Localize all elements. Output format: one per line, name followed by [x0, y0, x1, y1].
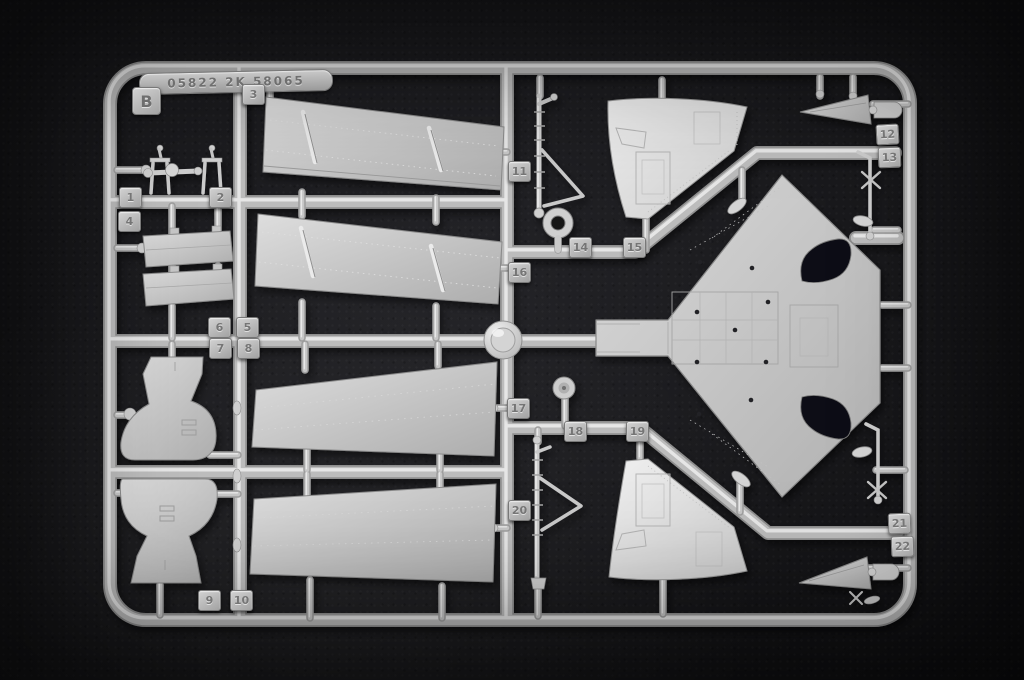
part-tag-13: 13 — [878, 147, 902, 169]
part-tag-11: 11 — [508, 161, 531, 182]
part-tag-5: 5 — [236, 317, 259, 338]
part-tag-16: 16 — [508, 262, 531, 283]
part-wing-upper-2 — [255, 214, 502, 304]
part-tag-15: 15 — [623, 237, 646, 258]
part-intake-duct-1 — [121, 357, 216, 460]
part-tag-7: 7 — [209, 338, 232, 359]
part-antenna-2 — [866, 424, 886, 504]
part-gear-strut-2 — [531, 436, 581, 589]
part-tag-19: 19 — [626, 421, 649, 442]
part-wheel — [553, 377, 575, 399]
part-tag-17: 17 — [507, 398, 530, 419]
part-tag-22: 22 — [891, 536, 915, 558]
part-tag-10: 10 — [230, 590, 253, 611]
part-wing-upper-1 — [263, 97, 504, 190]
part-tag-18: 18 — [564, 421, 587, 442]
part-wing-lower-1 — [252, 362, 497, 456]
part-tail-fin-bottom — [609, 459, 747, 580]
part-tag-2: 2 — [209, 187, 232, 208]
part-tag-21: 21 — [888, 513, 912, 535]
part-tag-20: 20 — [508, 500, 531, 521]
part-gear-strut-1 — [534, 94, 583, 219]
part-tag-3: 3 — [242, 84, 265, 105]
part-slab-1 — [143, 226, 233, 267]
part-tag-9: 9 — [198, 590, 221, 611]
part-slab-2 — [143, 264, 234, 306]
part-tag-4: 4 — [118, 211, 141, 232]
part-nose-cone-top — [800, 95, 902, 124]
part-tag-1: 1 — [119, 187, 142, 208]
part-fork-2 — [202, 145, 222, 193]
part-tag-12: 12 — [875, 123, 899, 145]
part-intake-duct-2 — [120, 479, 217, 583]
part-nose-cone-bottom — [799, 557, 899, 605]
part-tag-6: 6 — [208, 317, 231, 338]
part-dome — [484, 321, 522, 359]
part-tag-8: 8 — [237, 338, 260, 359]
part-tag-14: 14 — [569, 237, 592, 258]
part-tail-fin-top — [608, 98, 747, 219]
sprue-photo: 05822 2K 58065 B 1 2 3 4 5 6 7 8 9 10 11… — [0, 0, 1024, 680]
sprue-letter-tag: B — [132, 87, 161, 115]
part-wing-lower-2 — [250, 484, 496, 582]
mold-code-label: 05822 2K 58065 — [139, 69, 333, 95]
